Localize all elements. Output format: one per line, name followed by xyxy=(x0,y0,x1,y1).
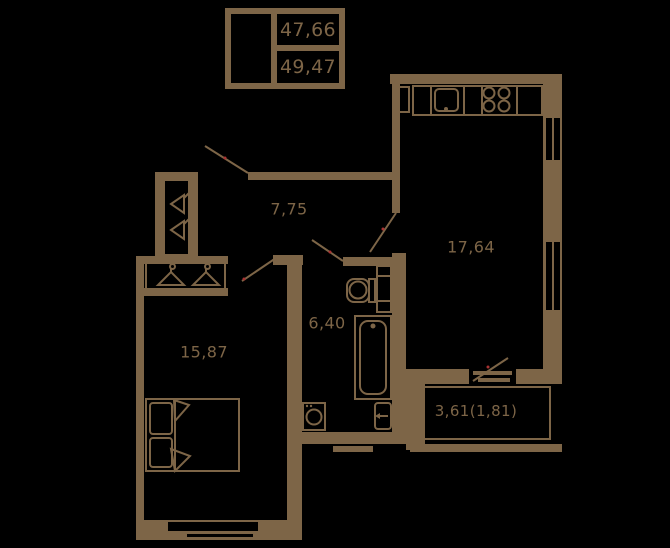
bathroom-door-swing xyxy=(312,240,343,261)
hanger-side-icon xyxy=(171,221,184,239)
sink-drain xyxy=(444,107,448,111)
living-door-swing xyxy=(370,213,396,252)
stove-burner xyxy=(484,101,495,112)
blanket-fold xyxy=(171,449,190,471)
blanket-fold xyxy=(174,400,189,421)
entry-door-swing xyxy=(205,146,248,173)
stove-burner xyxy=(499,101,510,112)
washing-machine-knob xyxy=(310,405,312,407)
hanger-front-hook xyxy=(170,264,175,269)
washing-machine-drum xyxy=(307,410,322,425)
door-marker xyxy=(487,366,490,369)
door-marker xyxy=(224,157,227,160)
basin-faucet-arrowhead xyxy=(375,413,380,419)
hanger-front-icon xyxy=(158,272,184,285)
hanger-front-hook xyxy=(205,264,210,269)
fixtures-overlay xyxy=(0,0,670,548)
hanger-side-icon xyxy=(171,195,184,213)
toilet-bowl xyxy=(350,282,367,299)
tub-faucet xyxy=(371,324,376,329)
door-marker xyxy=(243,278,246,281)
balcony-area-label: 3,61(1,81) xyxy=(435,402,518,420)
hallway-area-label: 7,75 xyxy=(270,200,307,219)
washing-machine-knob xyxy=(306,405,308,407)
bedroom-door-swing xyxy=(242,258,276,281)
living-kitchen-area-label: 17,64 xyxy=(447,238,495,257)
stove-burner xyxy=(499,88,510,99)
bedroom-area-label: 15,87 xyxy=(180,343,228,362)
balcony-door-swing xyxy=(473,358,508,381)
floor-plan: 47,66 49,47 xyxy=(0,0,670,548)
door-marker xyxy=(329,251,332,254)
bathroom-area-label: 6,40 xyxy=(308,314,345,333)
hanger-front-icon xyxy=(193,272,219,285)
door-marker xyxy=(382,228,385,231)
stove-burner xyxy=(484,88,495,99)
